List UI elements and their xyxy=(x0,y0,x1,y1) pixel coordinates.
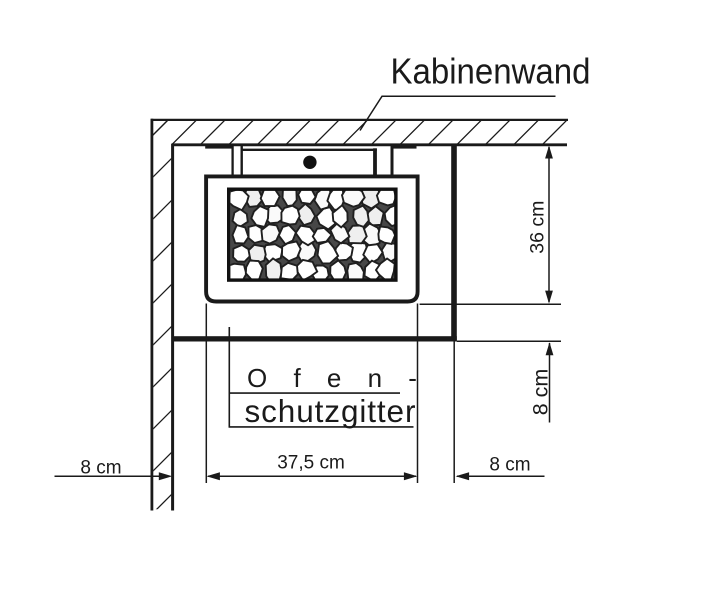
svg-text:O f e n -: O f e n - xyxy=(247,363,426,393)
svg-text:8 cm: 8 cm xyxy=(529,369,553,416)
svg-text:8 cm: 8 cm xyxy=(489,455,530,476)
svg-text:8 cm: 8 cm xyxy=(80,457,121,478)
svg-text:schutzgitter: schutzgitter xyxy=(245,393,417,429)
svg-text:37,5 cm: 37,5 cm xyxy=(277,453,345,474)
svg-text:36 cm: 36 cm xyxy=(527,201,549,254)
svg-text:Kabinenwand: Kabinenwand xyxy=(391,51,591,92)
